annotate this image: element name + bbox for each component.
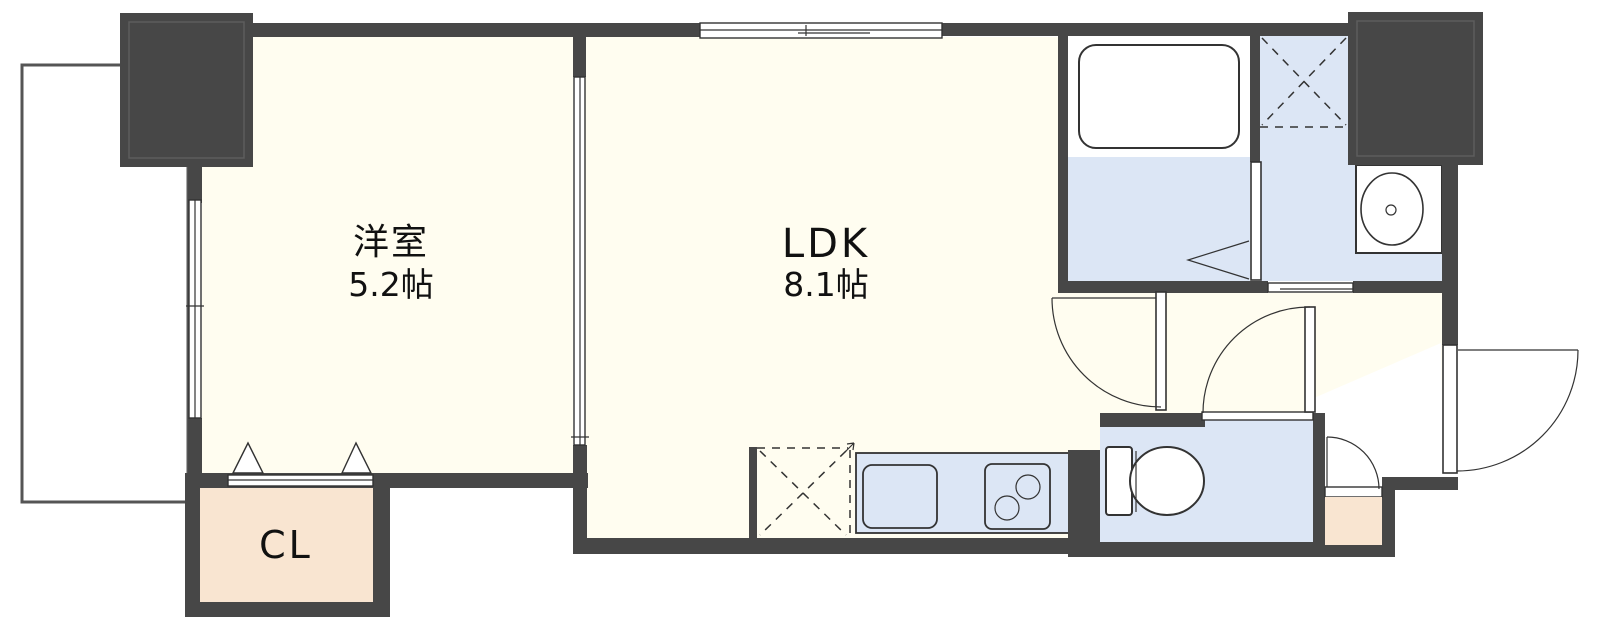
window-left: [186, 200, 204, 418]
window-top: [700, 23, 942, 38]
floor-plan: 洋室 5.2帖 LDK 8.1帖 CL: [0, 0, 1600, 631]
ldk-label: LDK: [782, 221, 870, 267]
bathtub: [1079, 45, 1239, 148]
washroom-sliding-door: [1268, 283, 1353, 292]
entry-door: [1443, 345, 1578, 473]
kitchen-sink: [863, 465, 937, 528]
floor-plan-drawing: 洋室 5.2帖 LDK 8.1帖 CL: [0, 0, 1600, 631]
western-room-label: 洋室: [353, 222, 429, 263]
closet-door-track: [228, 475, 373, 486]
western-room-area: 5.2帖: [348, 265, 433, 304]
ldk-area: 8.1帖: [783, 265, 868, 304]
stove: [985, 464, 1050, 529]
toilet: [1106, 447, 1204, 515]
pillar: [120, 13, 253, 167]
toilet-door-threshold: [1202, 412, 1313, 420]
pillar: [1348, 12, 1483, 165]
closet-label: CL: [259, 523, 313, 567]
washbasin-counter: [1356, 165, 1442, 253]
